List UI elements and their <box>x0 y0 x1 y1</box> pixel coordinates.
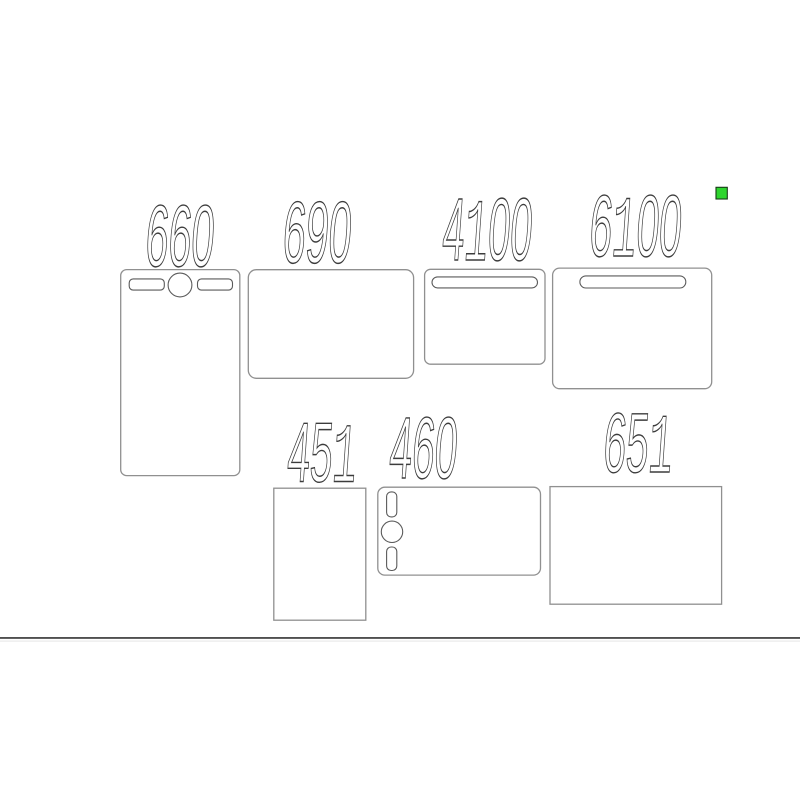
svg-text:651: 651 <box>600 397 676 498</box>
svg-text:460: 460 <box>387 400 461 497</box>
svg-text:6100: 6100 <box>586 178 685 283</box>
svg-text:690: 690 <box>280 184 355 281</box>
svg-text:451: 451 <box>284 406 360 507</box>
svg-text:4100: 4100 <box>439 180 536 287</box>
svg-text:660: 660 <box>143 188 218 285</box>
